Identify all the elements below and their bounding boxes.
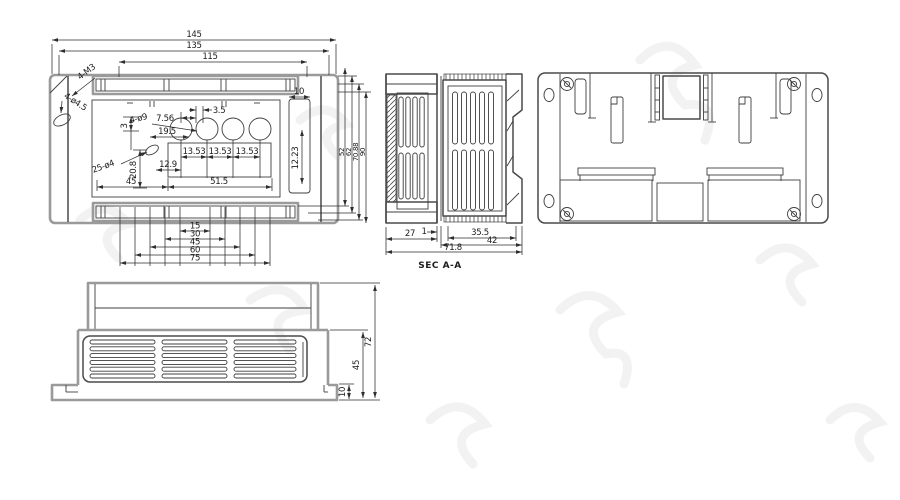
vent-slat [162,374,227,378]
label-4-d9: 4-ø9 [129,112,149,126]
left-wall-hatch [387,95,396,202]
vent-slat [162,367,227,371]
dim-13.53: 13.53 [209,147,232,157]
flange-hole [812,89,822,102]
vent-slat [162,354,227,358]
dim-42: 42 [487,236,497,246]
base-feet [52,385,337,400]
vent-slot [453,92,458,144]
vent-slot [489,92,494,144]
dim-51.5: 51.5 [210,177,228,187]
mid-rails [578,168,783,181]
rear-outline [538,73,828,223]
vent-slot [413,97,417,147]
dim-45: 45 [352,360,362,370]
section-label: SEC A-A [418,261,462,271]
hole-d9 [249,118,271,140]
bottom-vent-band [93,203,298,221]
chain-dim-label: 75 [190,254,200,264]
vent-slat [162,340,227,344]
vent-slot [489,150,494,210]
lid-bottom-cap [386,202,437,223]
vent-slot [480,150,485,210]
vent-slot [471,92,476,144]
dim-12.23: 12.23 [291,147,301,170]
vent-slat [234,354,296,358]
dim-10: 10 [338,387,348,397]
vent-slot [406,153,410,199]
vent-slat [234,374,296,378]
dim-3: 3 [120,123,130,128]
flange-hole [544,195,554,208]
dim-13.53: 13.53 [183,147,206,157]
corner-bevel [50,76,67,93]
dim-115: 115 [202,52,217,62]
top-vent-band [93,76,298,94]
dim-10: 10 [294,87,304,97]
top-view-dimensions: 145 135 115 4-M3 4-ø4.5 4-ø9 25-ø4 7.56 … [52,30,336,191]
dim-13.53: 13.53 [236,147,259,157]
top-slot [780,79,791,114]
hole-d9 [222,118,244,140]
section-view-dimensions: 27 1 35.5 42 71.8 SEC A-A [386,226,522,271]
vent-slot [420,97,424,147]
label-4-M3: 4-M3 [76,62,98,82]
vent-slot [399,153,403,199]
vent-slot [406,97,410,147]
engineering-drawing: 145 135 115 4-M3 4-ø4.5 4-ø9 25-ø4 7.56 … [0,0,900,500]
vent-slat [90,367,155,371]
dim-145: 145 [186,30,201,40]
din-rail-wall [506,74,522,223]
vent-slat [90,340,155,344]
vent-slot [480,92,485,144]
dim-12.9: 12.9 [159,160,177,170]
stack-dim-label: 90 [359,148,367,156]
vent-slat [162,347,227,351]
vent-slat [90,347,155,351]
front-vent-slats [90,340,296,378]
vent-slot [413,153,417,199]
drawing-sheet: 145 135 115 4-M3 4-ø4.5 4-ø9 25-ø4 7.56 … [0,0,900,500]
flange-hole [544,89,554,102]
vent-slot [462,92,467,144]
bottom-compartments [560,180,800,221]
vent-slot [399,97,403,147]
vent-slat [234,367,296,371]
vent-slat [234,360,296,364]
bottom-chain-dimensions: 1530456075 [120,207,270,266]
vent-panel [83,336,307,382]
hole-d9 [196,118,218,140]
label-25-d4: 25-ø4 [91,158,116,175]
flange-hole [812,195,822,208]
dim-19.5: 19.5 [158,127,176,137]
dim-135: 135 [186,41,201,51]
vent-slot [453,150,458,210]
vent-slat [90,374,155,378]
dim-1: 1 [421,227,426,237]
dim-71.8: 71.8 [444,243,462,253]
vent-slat [90,354,155,358]
dim-3.5: 3.5 [213,106,226,116]
vent-slot [420,153,424,199]
label-4-d4.5: 4-ø4.5 [62,91,89,113]
vent-slot [471,150,476,210]
dim-45: 45 [126,177,136,187]
section-view [386,74,522,223]
right-stack-dimensions: 526270.8890 [298,68,371,223]
bottom-serration [444,216,506,222]
section-vent-slots [399,92,494,210]
vent-slot [462,150,467,210]
vent-slat [162,360,227,364]
vent-slat [90,360,155,364]
rear-view [538,73,828,223]
top-slot [575,79,586,114]
corner-mounting-hole [52,111,73,128]
dim-7.56: 7.56 [156,114,174,124]
top-serration [444,74,506,80]
dim-72: 72 [364,337,374,347]
dim-27: 27 [405,229,415,239]
